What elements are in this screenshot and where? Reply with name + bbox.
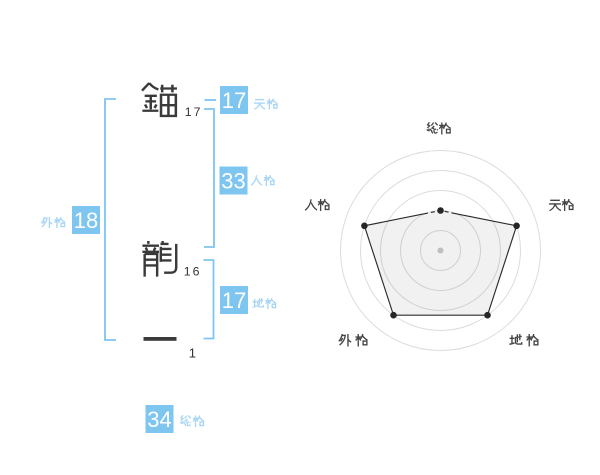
svg-text:17: 17 — [222, 88, 246, 113]
svg-text:34: 34 — [147, 407, 171, 432]
svg-text:16: 16 — [184, 265, 202, 279]
svg-text:33: 33 — [221, 168, 245, 193]
svg-text:1: 1 — [189, 346, 196, 361]
svg-text:17: 17 — [222, 288, 246, 313]
svg-text:17: 17 — [185, 105, 203, 119]
svg-text:18: 18 — [74, 208, 98, 233]
